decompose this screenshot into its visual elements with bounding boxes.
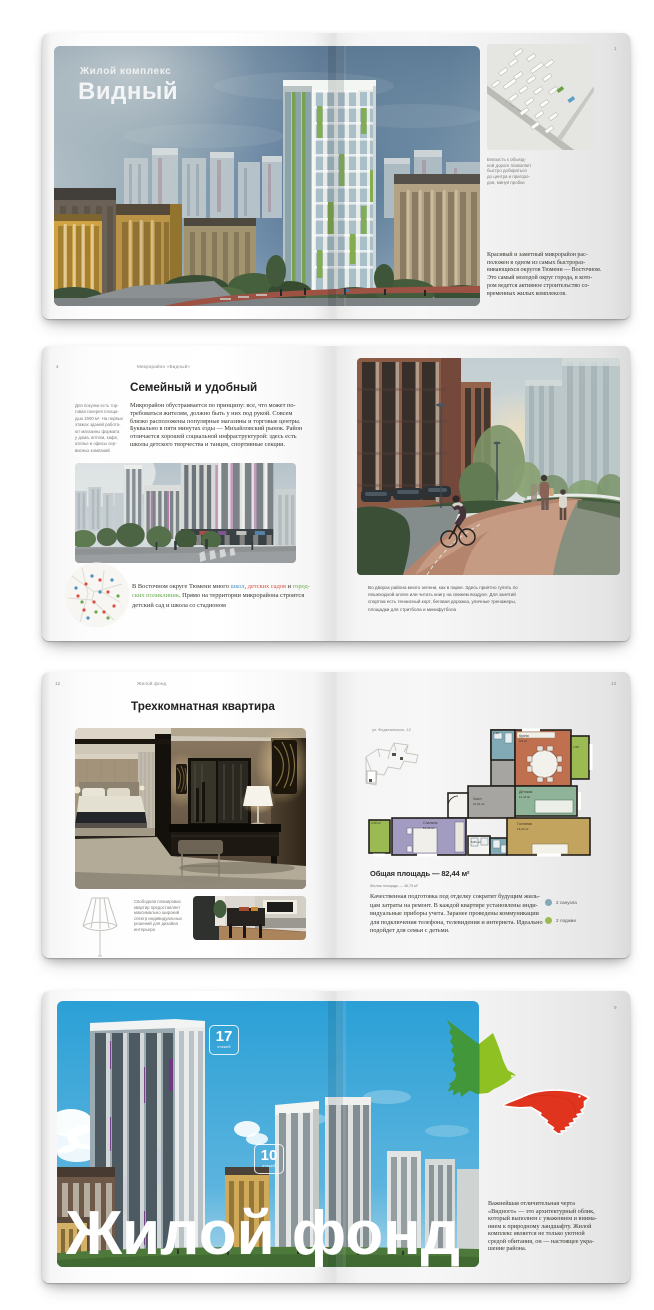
svg-text:14,36 м²: 14,36 м² bbox=[423, 826, 434, 830]
svg-text:Гостиная: Гостиная bbox=[517, 822, 532, 826]
svg-text:Кухня: Кухня bbox=[519, 734, 529, 738]
svg-text:10,01 м²: 10,01 м² bbox=[473, 802, 484, 806]
svg-text:11,42 м²: 11,42 м² bbox=[519, 795, 530, 799]
svg-text:3,30: 3,30 bbox=[493, 731, 499, 735]
svg-text:2,58: 2,58 bbox=[573, 745, 579, 749]
svg-text:2,08 м²: 2,08 м² bbox=[371, 821, 381, 825]
svg-text:Холл: Холл bbox=[473, 797, 481, 801]
svg-text:Спальня: Спальня bbox=[423, 821, 437, 825]
svg-text:9,8 м²: 9,8 м² bbox=[519, 739, 527, 743]
svg-text:Детская: Детская bbox=[519, 790, 532, 794]
svg-text:15,02 м²: 15,02 м² bbox=[517, 827, 528, 831]
svg-text:5,81 м²: 5,81 м² bbox=[471, 840, 481, 844]
